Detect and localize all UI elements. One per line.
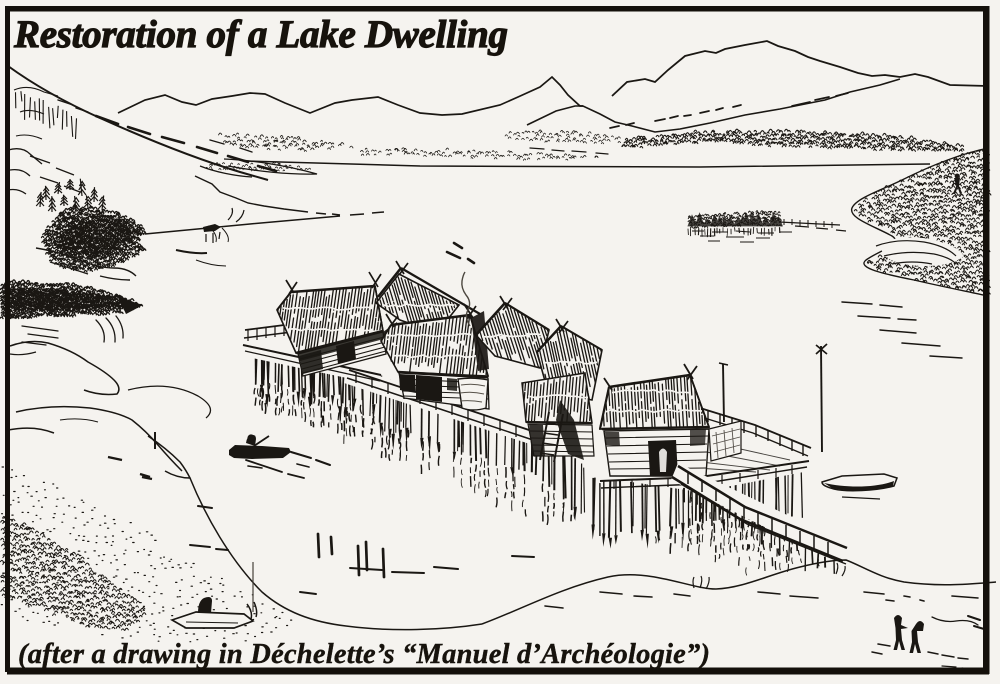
svg-text:Restoration of a Lake Dwelling: Restoration of a Lake Dwelling	[13, 13, 508, 56]
svg-text:(after a drawing in Déchelette: (after a drawing in Déchelette’s “Manuel…	[18, 639, 710, 670]
